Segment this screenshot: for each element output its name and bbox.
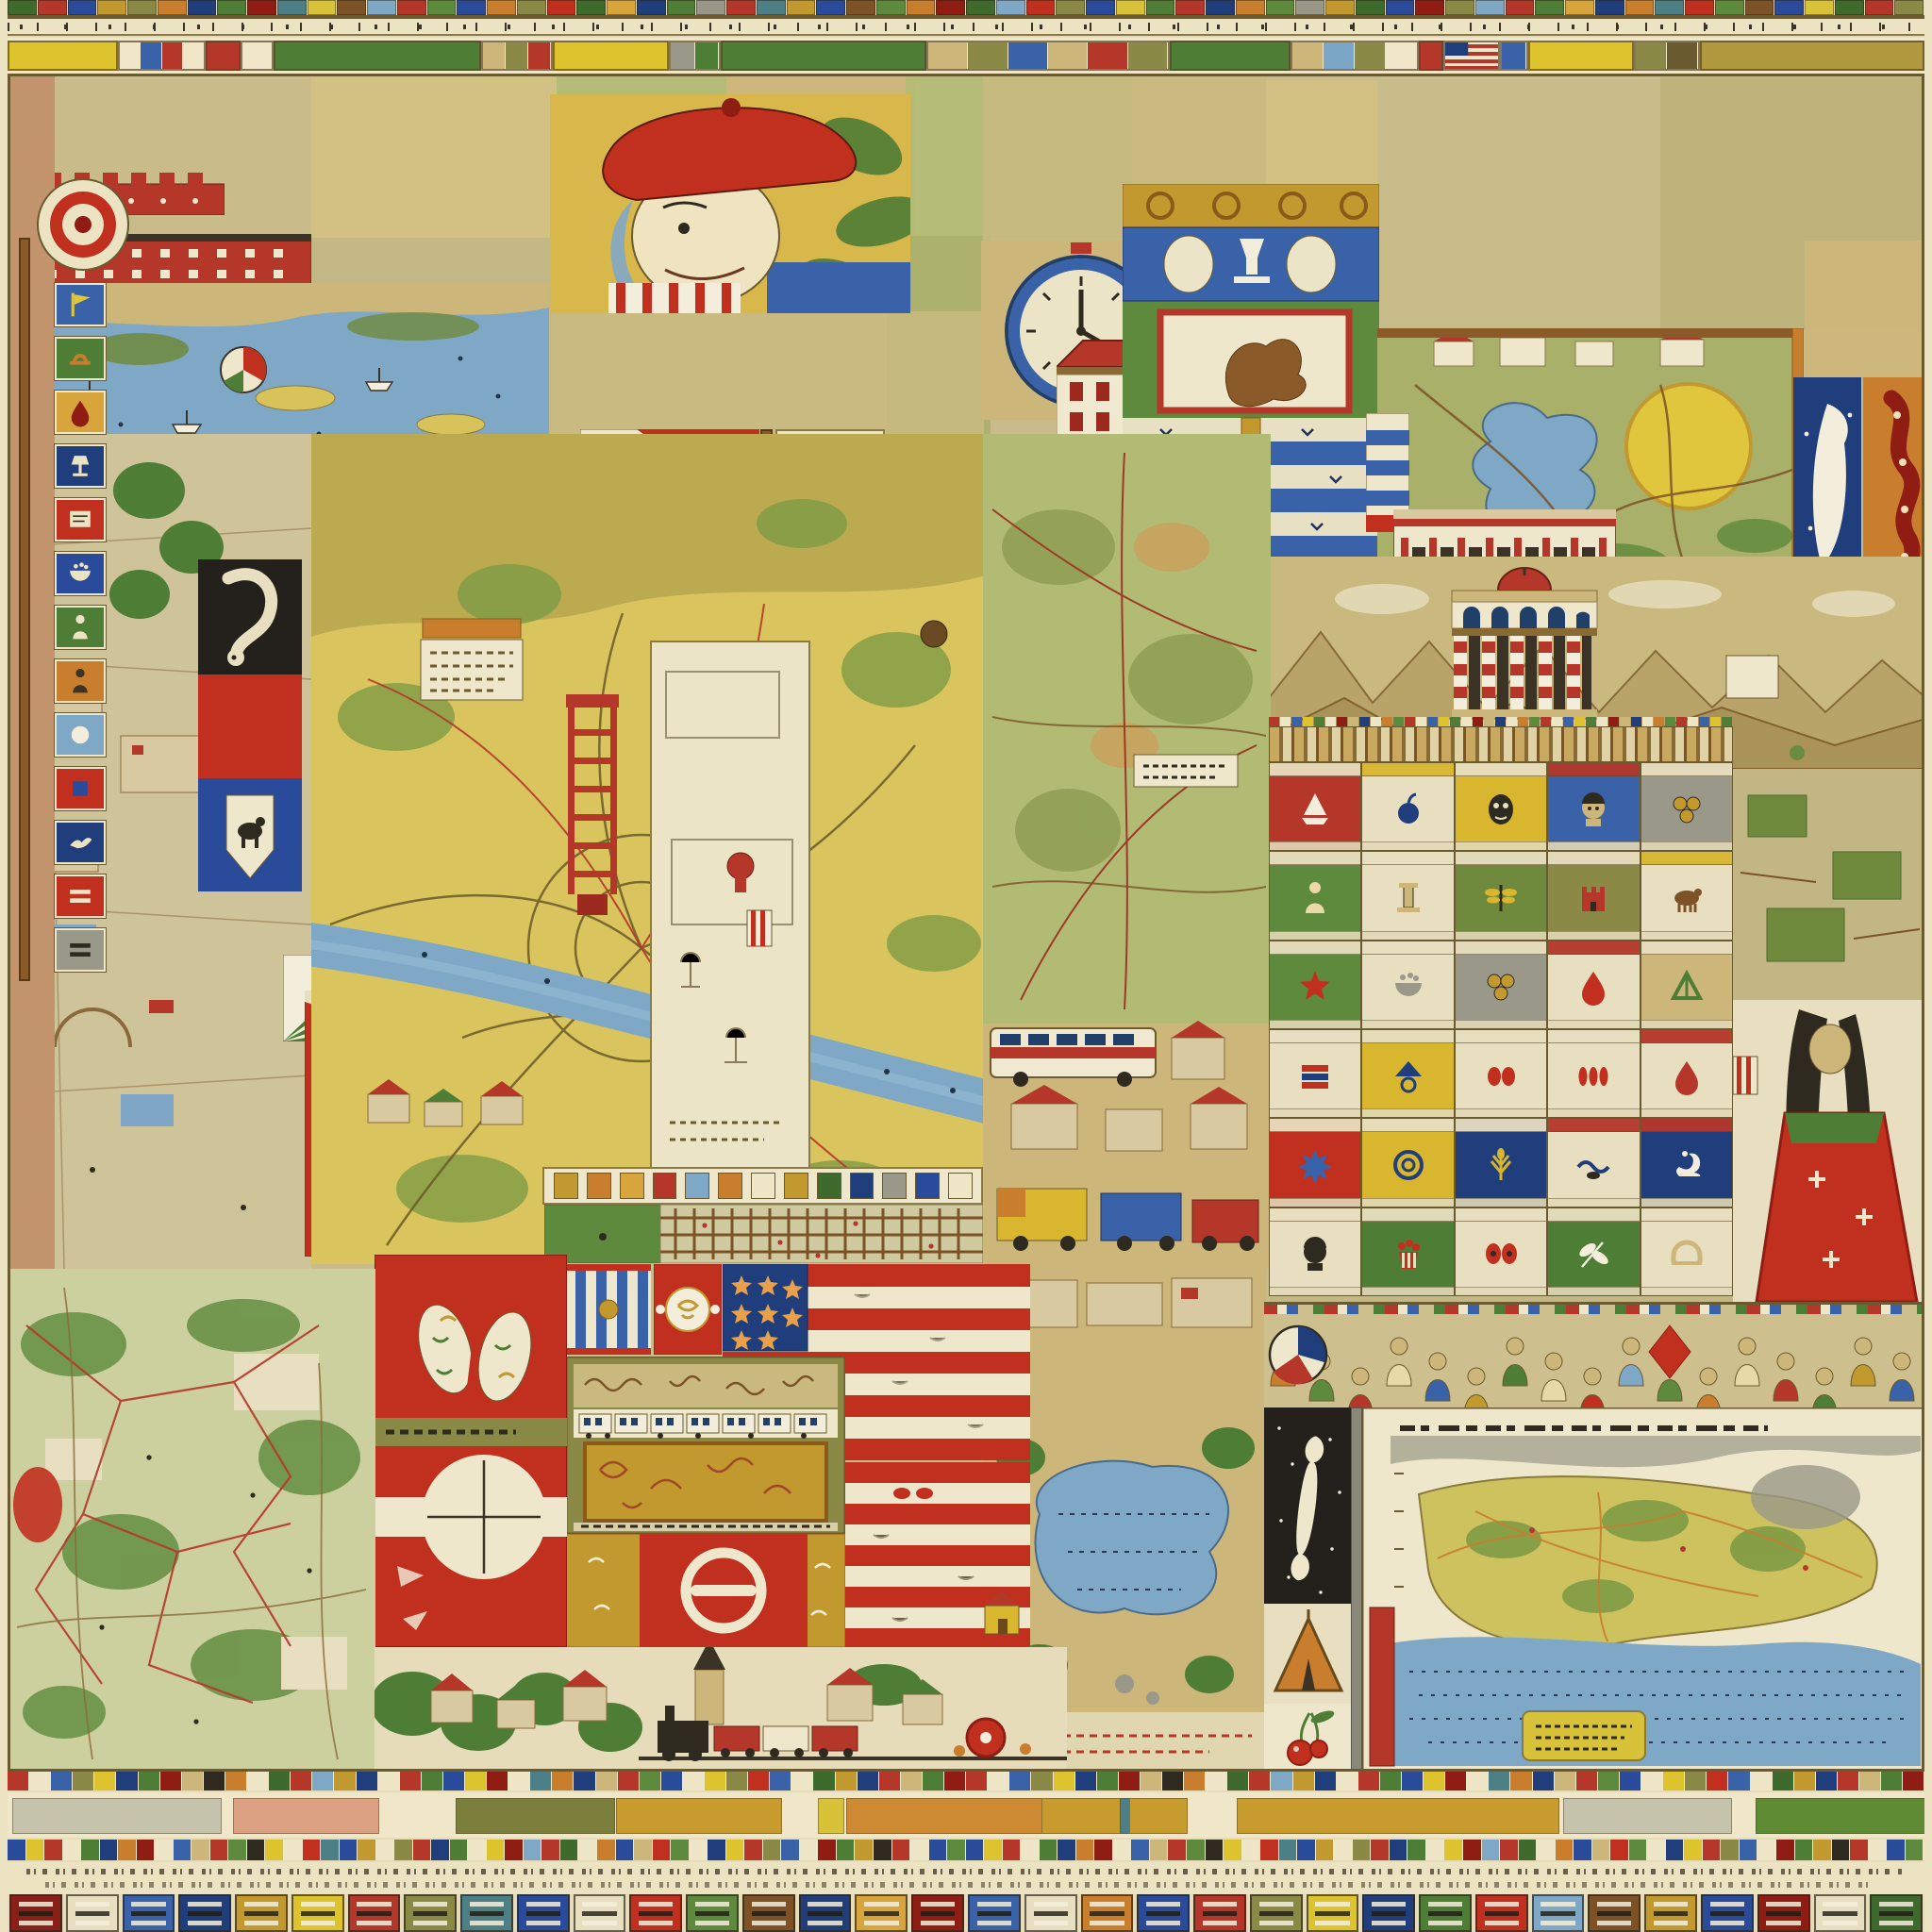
barcode-bar <box>1794 1772 1815 1790</box>
barcode-bar <box>1647 1840 1665 1860</box>
border-stamp <box>1362 1894 1415 1932</box>
checker-cell <box>1608 717 1619 726</box>
pictogram-tile <box>55 498 106 541</box>
mosaic-tile <box>876 0 906 15</box>
mosaic-tile <box>907 0 936 15</box>
crowd-figure <box>1735 1338 1759 1386</box>
barcode-bar <box>228 1840 246 1860</box>
mosaic-tile <box>97 0 126 15</box>
stamp-caption-band <box>1641 941 1732 955</box>
swatch-band <box>8 1792 1924 1838</box>
top-mosaic-strip <box>8 0 1924 15</box>
band-cell <box>183 42 203 69</box>
stamp-caption-band <box>1362 1119 1453 1132</box>
barcode-bar <box>1358 1772 1379 1790</box>
barcode-bar <box>1641 1772 1662 1790</box>
barcode-bar <box>837 1840 855 1860</box>
mosaic-tile <box>1386 0 1415 15</box>
mosaic-tile <box>217 0 246 15</box>
stamp-footer-band <box>1641 841 1732 850</box>
stamp-body <box>1548 865 1639 930</box>
mosaic-tile <box>1086 0 1115 15</box>
checker-cell <box>1371 717 1381 726</box>
emblem-stamp <box>1641 762 1733 851</box>
barcode-bar <box>1206 1840 1224 1860</box>
emblem-stamp <box>1269 762 1361 851</box>
cherry-vignette <box>1264 1704 1353 1772</box>
border-stamp <box>1024 1894 1077 1932</box>
checker-cell <box>1314 717 1324 726</box>
border-stamp <box>799 1894 852 1932</box>
stamp-footer-band <box>1456 1020 1546 1028</box>
barcode-bar <box>284 1840 302 1860</box>
mosaic-tile <box>277 0 307 15</box>
stamp-body <box>1362 955 1453 1020</box>
barcode-bar <box>874 1840 891 1860</box>
stamp-caption-band <box>1548 852 1639 865</box>
stamp-footer-band <box>1641 1108 1732 1117</box>
mosaic-tile <box>1506 0 1535 15</box>
stamp-footer-band <box>1641 931 1732 940</box>
stamp-footer-band <box>1548 1198 1639 1207</box>
stamp-body <box>1362 865 1453 930</box>
stamp-body <box>1270 1132 1360 1197</box>
checker-cell <box>1393 717 1404 726</box>
barcode-bar <box>1040 1840 1058 1860</box>
bowl-icon <box>64 558 96 590</box>
mosaic-tile <box>247 0 276 15</box>
barcode-bar <box>578 1840 596 1860</box>
emblem-stamp <box>1547 1207 1640 1296</box>
bus-vignette <box>991 1028 1156 1087</box>
barcode-bar <box>791 1772 812 1790</box>
mosaic-tile <box>1146 0 1175 15</box>
mosaic-tile <box>1685 0 1714 15</box>
border-stamp <box>9 1894 62 1932</box>
barcode-bar <box>465 1772 486 1790</box>
barcode-bar <box>1869 1840 1887 1860</box>
band-panel <box>1528 41 1634 71</box>
crowd-figure <box>1348 1368 1373 1407</box>
stamp-footer-band <box>1270 1108 1360 1117</box>
barcode-bar <box>1009 1772 1030 1790</box>
mosaic-tile <box>936 0 965 15</box>
countryside-road-map <box>8 1269 375 1772</box>
color-chip-strip <box>542 1167 983 1205</box>
stamp-body <box>1641 776 1732 841</box>
border-stamp <box>235 1894 288 1932</box>
checker-cell <box>1552 717 1562 726</box>
stamp-footer-band <box>1270 1287 1360 1295</box>
barcode-bar <box>1271 1772 1291 1790</box>
village-train-scene <box>375 1647 1067 1772</box>
barcode-bar <box>1380 1772 1401 1790</box>
stamp-footer-band <box>1362 931 1453 940</box>
barcode-bar <box>818 1840 836 1860</box>
border-stamp <box>1307 1894 1359 1932</box>
band-cell <box>1502 42 1525 69</box>
mosaic-tile <box>1056 0 1085 15</box>
emblem-stamp <box>1547 762 1640 851</box>
mosaic-tile <box>696 0 725 15</box>
bird-icon <box>64 826 96 858</box>
barcode-bar <box>1463 1840 1481 1860</box>
mosaic-tile <box>1774 0 1804 15</box>
stamp-body <box>1641 1132 1732 1197</box>
crowd-figure <box>1890 1353 1914 1401</box>
emblem-stamp <box>1269 941 1361 1029</box>
barcode-bar <box>560 1840 578 1860</box>
face-icon <box>1573 789 1614 830</box>
stamp-footer-band <box>1362 1020 1453 1028</box>
lamp-icon <box>64 450 96 482</box>
barcode-bar <box>1629 1840 1647 1860</box>
barcode-bar <box>1684 1840 1702 1860</box>
stamp-footer-band <box>1548 841 1639 850</box>
barcode-bar <box>376 1840 394 1860</box>
barcode-bar <box>73 1772 93 1790</box>
barcode-bar <box>855 1840 873 1860</box>
stamp-body <box>1456 1222 1546 1287</box>
barcode-bar <box>1402 1772 1423 1790</box>
barcode-bar <box>661 1772 682 1790</box>
mosaic-tile <box>1026 0 1056 15</box>
striped-columns-building <box>1446 566 1603 736</box>
emblem-stamp <box>1455 1207 1547 1296</box>
barcode-bar <box>1903 1772 1924 1790</box>
band-cell <box>1667 42 1697 69</box>
mosaic-tile <box>337 0 366 15</box>
eyes-icon <box>1480 1233 1522 1274</box>
emblem-stamp <box>1361 1118 1454 1207</box>
barcode-bar <box>1838 1772 1858 1790</box>
band-cell <box>141 42 160 69</box>
sign-icon <box>64 504 96 536</box>
wave-icon <box>1573 1144 1614 1186</box>
mosaic-tile <box>427 0 457 15</box>
border-stamp <box>348 1894 401 1932</box>
barcode-bar <box>1031 1772 1052 1790</box>
mosaic-tile <box>996 0 1025 15</box>
barcode-bar <box>443 1772 464 1790</box>
barcode-bar <box>910 1840 928 1860</box>
right-page-margin <box>1924 0 1932 1932</box>
band-panel <box>1419 41 1443 71</box>
barcode-bar <box>1097 1772 1118 1790</box>
emblem-stamp <box>1641 1118 1733 1207</box>
rings-icon <box>1388 1144 1429 1186</box>
barcode-bar <box>413 1840 431 1860</box>
checker-cell <box>1529 717 1540 726</box>
background-patch <box>311 75 557 241</box>
stamp-body <box>1456 955 1546 1020</box>
pictogram-tile <box>55 713 106 757</box>
stamp-caption-band <box>1270 852 1360 865</box>
barcode-bar <box>1279 1840 1297 1860</box>
ovals3-icon <box>1573 1056 1614 1097</box>
barcode-bar <box>508 1772 529 1790</box>
drop-icon <box>64 396 96 428</box>
bars-icon <box>64 880 96 912</box>
barcode-bar <box>378 1772 399 1790</box>
mosaic-tile <box>1835 0 1864 15</box>
checker-cell <box>1337 717 1347 726</box>
barcode-bar <box>763 1840 781 1860</box>
checker-cell <box>1348 717 1358 726</box>
barcode-bar <box>1150 1840 1168 1860</box>
barcode-strip-upper <box>8 1772 1924 1790</box>
barcode-bar <box>1556 1840 1574 1860</box>
emblem-stamp <box>1455 851 1547 940</box>
barcode-bar <box>1773 1772 1793 1790</box>
stamp-footer-band <box>1641 1020 1732 1028</box>
pictorial-map-collage <box>0 0 1932 1932</box>
emblem-stamp <box>1455 1118 1547 1207</box>
barcode-bar <box>813 1772 834 1790</box>
stamp-footer-band <box>1641 1287 1732 1295</box>
border-pole <box>19 238 30 981</box>
background-patch <box>1377 77 1660 330</box>
color-chip <box>685 1173 709 1199</box>
mosaic-tile <box>1894 0 1924 15</box>
mosaic-tile <box>1655 0 1684 15</box>
mosaic-tile <box>1595 0 1624 15</box>
mosaic-tile <box>816 0 845 15</box>
barcode-bar <box>984 1840 1002 1860</box>
barcode-bar <box>726 1840 744 1860</box>
bridge-icon <box>1666 1233 1707 1274</box>
stamp-caption-band <box>1456 1030 1546 1043</box>
checker-cell <box>1484 717 1494 726</box>
color-chip <box>948 1173 973 1199</box>
color-chip <box>915 1173 940 1199</box>
background-patch <box>550 311 984 436</box>
border-stamp <box>178 1894 231 1932</box>
leaf-icon <box>1573 1233 1614 1274</box>
barcode-bar <box>487 1840 505 1860</box>
mosaic-tile <box>1116 0 1145 15</box>
barcode-bar <box>616 1840 634 1860</box>
mosaic-tile <box>1535 0 1564 15</box>
barcode-bar <box>1390 1840 1407 1860</box>
stamp-body <box>1641 1043 1732 1108</box>
mini-flag-tile <box>1443 41 1500 71</box>
emblem-stamp <box>1641 1207 1733 1296</box>
crowd-figure <box>1619 1338 1643 1386</box>
roadmap-district <box>983 434 1271 1269</box>
barcode-bar <box>1795 1840 1813 1860</box>
color-swatch <box>1237 1798 1559 1834</box>
barcode-bar <box>358 1840 375 1860</box>
border-stamp <box>686 1894 739 1932</box>
color-swatch <box>1756 1798 1926 1834</box>
terrace-tiles-panel <box>1731 769 1932 1000</box>
stamp-caption-band <box>1641 763 1732 776</box>
checker-cell <box>1563 717 1574 726</box>
mosaic-tile <box>127 0 157 15</box>
crowd-figure <box>1464 1368 1489 1407</box>
ovals2-icon <box>1480 1056 1522 1097</box>
barcode-bar <box>1371 1840 1389 1860</box>
stamp-footer-band <box>1641 1198 1732 1207</box>
barcode-bar <box>1206 1772 1226 1790</box>
square-icon <box>64 773 96 805</box>
train-tapestry-panel <box>566 1357 845 1534</box>
barcode-bar <box>63 1840 81 1860</box>
band-cell <box>1355 42 1385 69</box>
berry-icon <box>1388 789 1429 830</box>
stamp-body <box>1548 1043 1639 1108</box>
barcode-bar <box>1337 1772 1357 1790</box>
emblem-stamp <box>1547 1118 1640 1207</box>
column-icon <box>1388 877 1429 919</box>
figure-icon <box>1294 877 1336 919</box>
pictogram-tile <box>55 337 106 380</box>
barcode-bar <box>596 1772 617 1790</box>
mosaic-tile <box>1445 0 1474 15</box>
barcode-bar <box>225 1772 246 1790</box>
mosaic-tile <box>1565 0 1594 15</box>
border-stamp <box>1081 1894 1134 1932</box>
barcode-bar <box>618 1772 639 1790</box>
color-chip <box>882 1173 907 1199</box>
mosaic-tile <box>457 0 486 15</box>
checker-cell <box>1473 717 1483 726</box>
emblem-stamp <box>1361 1029 1454 1118</box>
mosaic-tile <box>1475 0 1505 15</box>
barcode-bar <box>1131 1840 1149 1860</box>
checker-cell <box>1620 717 1630 726</box>
stamp-caption-band <box>1270 1030 1360 1043</box>
figure-icon <box>64 611 96 643</box>
barcode-bar <box>1426 1840 1444 1860</box>
stamp-caption-band <box>1270 763 1360 776</box>
barcode-bar <box>1666 1840 1684 1860</box>
color-swatch <box>1041 1798 1122 1834</box>
checker-cell <box>1541 717 1551 726</box>
stamp-body <box>1641 865 1732 930</box>
stamp-body <box>1641 1222 1732 1287</box>
barcode-bar <box>182 1772 203 1790</box>
disc-icon <box>64 719 96 751</box>
stamp-body <box>1270 776 1360 841</box>
stamp-body <box>1456 1043 1546 1108</box>
checker-cell <box>1597 717 1607 726</box>
barcode-bar <box>247 1772 268 1790</box>
stick-frieze <box>1269 726 1733 762</box>
tent-vignette <box>1264 1604 1353 1704</box>
barcode-strip-lower <box>8 1840 1924 1860</box>
checker-cell <box>1325 717 1336 726</box>
barcode-bar <box>1113 1840 1131 1860</box>
disc-emblem-flag <box>654 1264 722 1355</box>
stamp-caption-band <box>1641 852 1732 865</box>
stamp-caption-band <box>1270 941 1360 955</box>
background-patch <box>1805 241 1932 380</box>
barcode-bar <box>1555 1772 1575 1790</box>
barcode-bar <box>94 1772 115 1790</box>
stamp-footer-band <box>1548 931 1639 940</box>
beret-figure-panel <box>550 94 910 313</box>
band-cell <box>1324 42 1354 69</box>
mosaic-tile <box>158 0 187 15</box>
barcode-bar <box>1076 1840 1094 1860</box>
border-stamp <box>66 1894 119 1932</box>
figure-icon <box>64 665 96 697</box>
barcode-bar <box>247 1840 265 1860</box>
border-stamp <box>1532 1894 1585 1932</box>
flag-icon <box>64 289 96 321</box>
checker-cell <box>1303 717 1313 726</box>
barcode-bar <box>748 1772 769 1790</box>
top-color-band <box>8 38 1924 75</box>
stamp-caption-band <box>1548 941 1639 955</box>
tent-icon <box>1666 966 1707 1008</box>
barcode-bar <box>1249 1772 1270 1790</box>
crowd-figure <box>1425 1353 1450 1401</box>
color-chip <box>620 1173 644 1199</box>
barcode-bar <box>291 1772 311 1790</box>
checker-cell <box>1269 717 1279 726</box>
barcode-bar <box>1850 1840 1868 1860</box>
mosaic-tile <box>576 0 606 15</box>
barcode-bar <box>269 1772 290 1790</box>
stamp-footer-band <box>1456 1287 1546 1295</box>
band-tile-cluster <box>118 41 206 71</box>
pictogram-tile <box>55 283 106 326</box>
border-stamp <box>517 1894 570 1932</box>
stamp-body <box>1641 955 1732 1020</box>
glyph-caption-band <box>8 1862 1924 1894</box>
barcode-bar <box>1315 1772 1336 1790</box>
barcode-bar <box>858 1772 878 1790</box>
band-panel <box>553 41 669 71</box>
barcode-bar <box>1751 1772 1772 1790</box>
emblem-stamp <box>1641 1029 1733 1118</box>
mosaic-tile <box>1236 0 1265 15</box>
stamp-body <box>1270 1043 1360 1108</box>
band-cell <box>483 42 505 69</box>
barcode-bar <box>1859 1772 1880 1790</box>
inset-divider-bar <box>1351 1407 1362 1772</box>
mosaic-tile <box>1715 0 1744 15</box>
checker-cell <box>1518 717 1528 726</box>
barcode-bar <box>1576 1772 1597 1790</box>
barcode-bar <box>1444 1840 1462 1860</box>
bars-icon <box>64 934 96 966</box>
fence-band <box>544 1205 983 1263</box>
band-cell <box>671 42 694 69</box>
checker-cell <box>1291 717 1302 726</box>
barcode-bar <box>640 1772 660 1790</box>
border-stamp <box>123 1894 175 1932</box>
barcode-bar <box>160 1772 181 1790</box>
crowd-figure <box>1696 1368 1721 1407</box>
band-cell <box>968 42 1007 69</box>
star-icon <box>1294 966 1336 1008</box>
barcode-bar <box>1598 1772 1619 1790</box>
checker-cell <box>1507 717 1517 726</box>
barcode-bar <box>174 1840 192 1860</box>
mosaic-tile <box>1325 0 1355 15</box>
stamp-body <box>1362 1132 1453 1197</box>
red-kite <box>1649 1325 1690 1378</box>
band-cell <box>695 42 719 69</box>
stamp-caption-band <box>1548 1030 1639 1043</box>
barcode-bar <box>139 1772 159 1790</box>
pictogram-tile <box>55 928 106 972</box>
band-cell <box>1386 42 1416 69</box>
